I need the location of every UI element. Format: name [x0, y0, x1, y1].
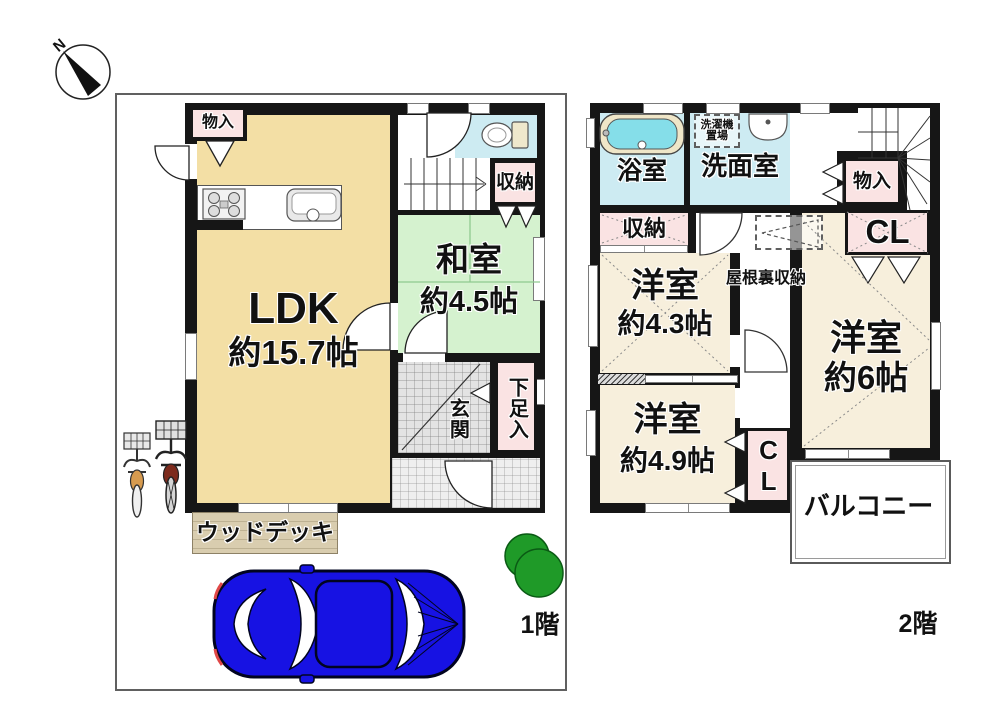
window-2f-left-west49	[586, 410, 596, 456]
window-west6-balcony	[805, 449, 890, 459]
window-2f-left-west43	[588, 265, 598, 347]
window-1f-left-ldk	[185, 333, 197, 380]
bath-label: 浴室	[600, 156, 684, 186]
window-2f-top-bath	[643, 103, 683, 114]
laundry-line2: 置場	[706, 131, 728, 142]
west6-name-label: 洋室	[802, 318, 930, 358]
window-2f-right-west6	[931, 322, 941, 390]
window-49-bottom	[645, 503, 730, 513]
compass-north-label: N	[46, 32, 74, 60]
washitsu-name-label: 和室	[398, 242, 540, 278]
laundry-label: 洗濯機 置場	[694, 114, 740, 148]
door-gap-ldk-hall	[390, 303, 398, 350]
west49-name-label: 洋室	[600, 402, 735, 440]
wall-hatch-43-49	[598, 374, 645, 384]
cl-upper-label: CL	[845, 212, 930, 253]
floor1-label: 1階	[502, 610, 578, 640]
monoire-2f-label: 物入	[843, 160, 901, 203]
shunou-1f-label: 収納	[492, 162, 538, 203]
west43-name-label: 洋室	[600, 268, 730, 306]
closet-shunou-2f-door	[600, 245, 688, 253]
west49-size-label: 約4.9帖	[600, 444, 735, 478]
floor2-label: 2階	[878, 608, 958, 640]
window-1f-shoe-right	[536, 379, 545, 405]
window-2f-top-hall	[800, 103, 830, 114]
west43-size-label: 約4.3帖	[600, 308, 730, 340]
cl-lower-label: CL	[752, 436, 784, 496]
west6-size-label: 約6帖	[802, 360, 930, 396]
window-1f-top-toilet	[468, 103, 490, 114]
ldk-name-label: LDK	[197, 286, 390, 332]
corridor-2f	[696, 213, 740, 253]
door-gap-west49	[735, 388, 745, 418]
hallway-1f	[398, 115, 455, 158]
window-2f-left-bath	[586, 118, 595, 148]
shunou-2f-label: 収納	[600, 214, 688, 244]
compass-needle-icon	[63, 51, 101, 96]
room-washitsu	[398, 215, 540, 353]
door-gap-1f-left	[185, 144, 197, 179]
window-1f-ldk-deck	[238, 503, 338, 513]
wood-deck-label: ウッドデッキ	[192, 520, 338, 546]
window-1f-top-hall	[407, 103, 429, 114]
shoe-box-label: 下足入	[504, 372, 528, 444]
room-toilet	[455, 115, 537, 158]
senmen-label: 洗面室	[690, 150, 790, 184]
genkan-label: 玄関	[444, 390, 470, 448]
door-gap-washitsu	[403, 352, 445, 362]
monoire-1f-label: 物入	[189, 108, 247, 139]
window-43-49	[645, 375, 738, 383]
attic-hatch	[755, 215, 823, 250]
balcony-label: バルコニー	[790, 492, 947, 522]
window-2f-top-senmen	[706, 103, 740, 114]
kitchen-half-wall	[185, 220, 243, 230]
ldk-size-label: 約15.7帖	[197, 334, 390, 372]
floor-plan-canvas: N LDK 約15.7帖 和室 約4.5帖 物入 収納 玄関 下足入 ウッドデッ…	[0, 0, 991, 722]
entrance-porch	[392, 458, 540, 508]
washitsu-size-label: 約4.5帖	[398, 286, 540, 318]
stairs-1f	[398, 158, 490, 210]
door-gap-west43	[730, 335, 740, 367]
